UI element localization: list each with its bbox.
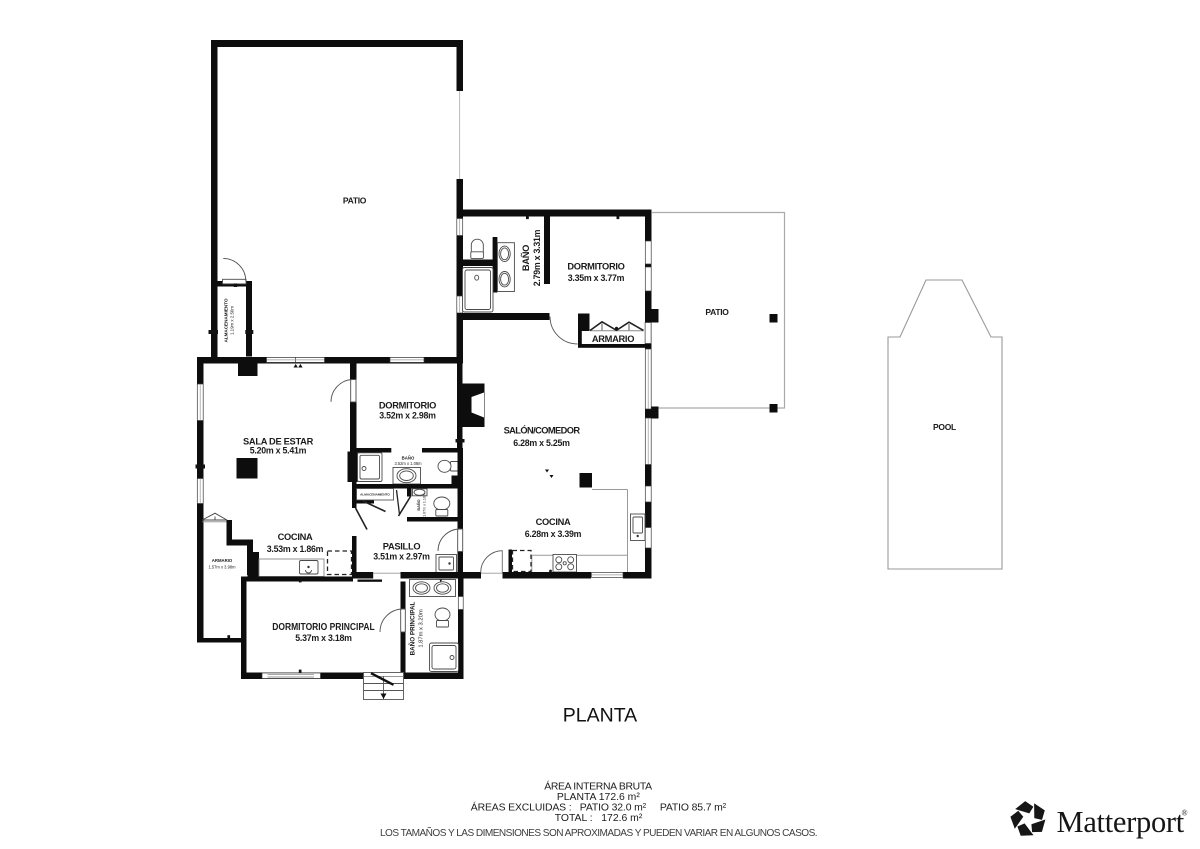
svg-text:PATIO: PATIO [343, 196, 367, 206]
svg-text:ÁREA INTERNA BRUTA: ÁREA INTERNA BRUTA [544, 780, 652, 793]
svg-text:COCINA: COCINA [278, 532, 313, 542]
svg-text:1.87m x 3.20m: 1.87m x 3.20m [419, 609, 425, 648]
svg-text:COCINA: COCINA [536, 517, 571, 527]
svg-text:DORMITORIO: DORMITORIO [379, 401, 436, 411]
svg-text:BAÑO: BAÑO [416, 499, 421, 510]
svg-text:PATIO: PATIO [705, 307, 729, 317]
svg-text:ÁREAS EXCLUIDAS : PATIO 32.0: ÁREAS EXCLUIDAS : PATIO 32.0 m² PATIO 85… [471, 800, 727, 813]
svg-text:6.28m x 3.39m: 6.28m x 3.39m [525, 529, 582, 539]
svg-text:POOL: POOL [933, 422, 956, 432]
svg-text:TOTAL : 172.6 m²: TOTAL : 172.6 m² [555, 813, 643, 824]
svg-text:6.28m x 5.25m: 6.28m x 5.25m [513, 438, 570, 448]
svg-text:BAÑO: BAÑO [402, 455, 415, 460]
svg-text:DORMITORIO: DORMITORIO [567, 262, 624, 272]
svg-text:BAÑO PRINCIPAL: BAÑO PRINCIPAL [408, 601, 417, 655]
svg-text:SALÓN/COMEDOR: SALÓN/COMEDOR [504, 425, 581, 436]
svg-text:Matterport: Matterport [1057, 805, 1185, 839]
svg-text:3.52m x 1.08m: 3.52m x 1.08m [394, 461, 422, 466]
svg-text:ARMARIO: ARMARIO [592, 334, 634, 344]
svg-text:2.79m x 3.31m: 2.79m x 3.31m [532, 229, 542, 286]
svg-text:ARMARIO: ARMARIO [212, 558, 233, 563]
svg-text:ALMACENAMIENTO: ALMACENAMIENTO [360, 493, 390, 497]
svg-text:5.37m x 3.18m: 5.37m x 3.18m [295, 633, 352, 643]
svg-text:5.20m x 5.41m: 5.20m x 5.41m [250, 446, 307, 456]
svg-text:3.53m x 1.86m: 3.53m x 1.86m [267, 544, 324, 554]
svg-text:1.67m x 1.10m: 1.67m x 1.10m [423, 493, 427, 517]
svg-text:3.52m x 2.98m: 3.52m x 2.98m [379, 411, 436, 421]
svg-text:DORMITORIO PRINCIPAL: DORMITORIO PRINCIPAL [272, 622, 375, 633]
svg-text:BAÑO: BAÑO [521, 245, 531, 271]
svg-text:ALMACENAMIENTO: ALMACENAMIENTO [224, 298, 229, 342]
svg-text:1.19m x 2.50m: 1.19m x 2.50m [230, 306, 235, 335]
svg-text:PLANTA: PLANTA [563, 705, 637, 727]
svg-text:3.51m x 2.97m: 3.51m x 2.97m [373, 552, 430, 562]
svg-text:®: ® [1182, 809, 1188, 818]
svg-text:1.57m x 3.98m: 1.57m x 3.98m [208, 565, 236, 570]
svg-text:LOS TAMAÑOS Y LAS DIMENSIONES: LOS TAMAÑOS Y LAS DIMENSIONES SON APROXI… [380, 826, 817, 839]
svg-text:3.35m x 3.77m: 3.35m x 3.77m [568, 273, 625, 283]
svg-text:PLANTA 172.6 m²: PLANTA 172.6 m² [557, 792, 641, 803]
svg-text:PASILLO: PASILLO [383, 542, 421, 552]
